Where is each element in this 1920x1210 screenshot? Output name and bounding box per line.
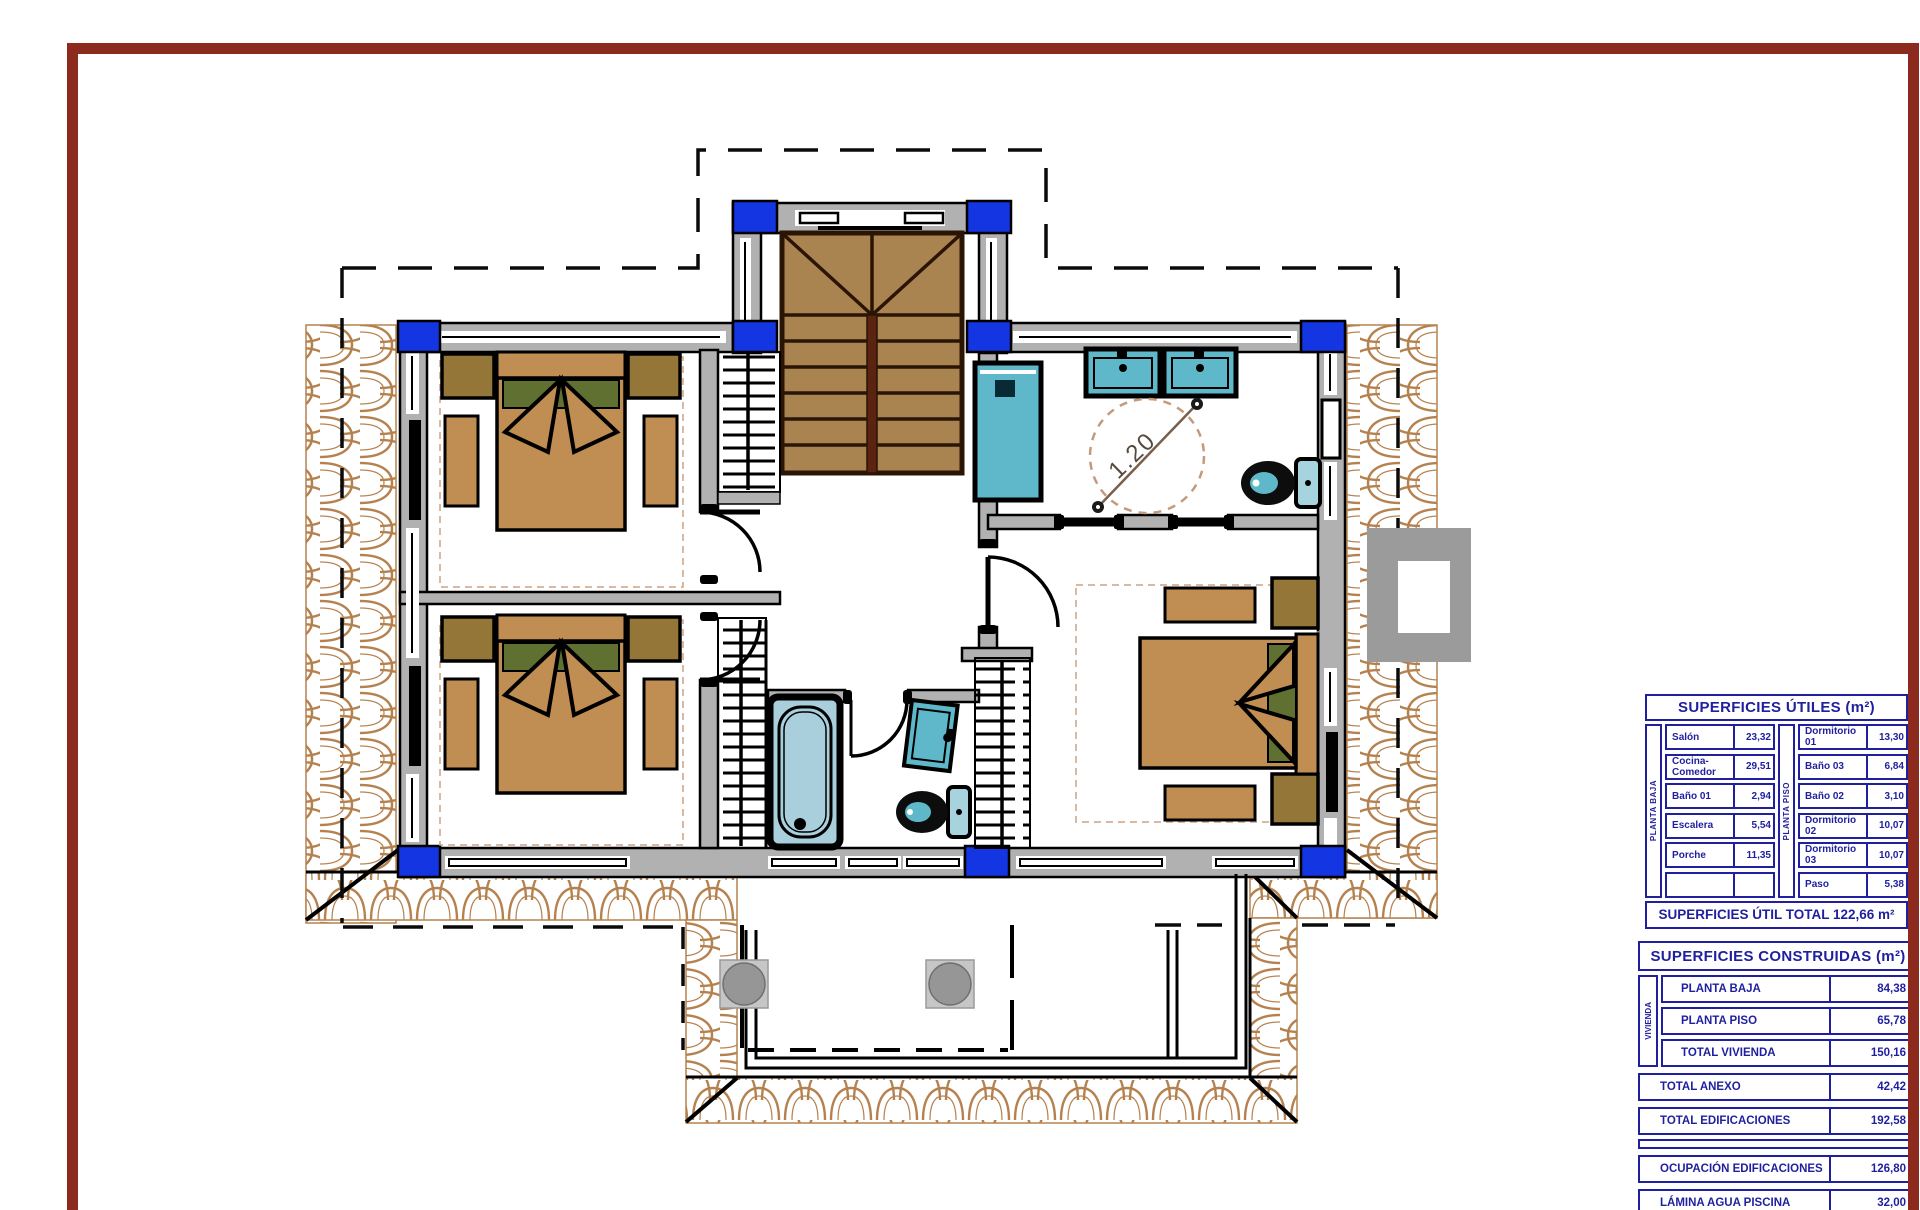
- dimension-label: 1.20: [1103, 427, 1161, 484]
- wall-sink: [904, 700, 959, 771]
- table-row: PLANTA BAJA84,38: [1661, 975, 1918, 1003]
- group-label-planta-baja: PLANTA BAJA: [1645, 724, 1662, 898]
- bathroom-top: 1.20: [1086, 349, 1320, 513]
- table-row-empty: [1665, 872, 1775, 898]
- table-row-empty: [1638, 1139, 1918, 1149]
- double-sinks: [1086, 349, 1236, 396]
- table-superficies-utiles: SUPERFICIES ÚTILES (m²) PLANTA BAJA Saló…: [1645, 694, 1908, 929]
- table-title: SUPERFICIES CONSTRUIDAS (m²): [1638, 941, 1918, 971]
- door-bedroom3: [988, 557, 1058, 627]
- toilet-top: [1241, 459, 1320, 507]
- porch: [720, 874, 1246, 1068]
- toilet-center: [896, 787, 970, 837]
- table-row: Porche11,35: [1665, 842, 1775, 868]
- table-row: Dormitorio 0113,30: [1798, 724, 1908, 750]
- table-row: Cocina-Comedor29,51: [1665, 754, 1775, 780]
- table-row: Escalera5,54: [1665, 813, 1775, 839]
- table-row: Dormitorio 0310,07: [1798, 842, 1908, 868]
- chimney: [1367, 528, 1471, 662]
- bedroom-2: [440, 615, 683, 845]
- table-superficies-construidas: SUPERFICIES CONSTRUIDAS (m²) VIVIENDA PL…: [1638, 941, 1918, 1210]
- porch-columns: [720, 960, 974, 1008]
- closet-bedroom3: [975, 658, 1030, 848]
- closet-bedroom1: [718, 352, 780, 504]
- bedroom-3: [1076, 578, 1318, 824]
- bedroom-1: [440, 352, 683, 587]
- table-row: OCUPACIÓN EDIFICACIONES126,80: [1638, 1155, 1918, 1183]
- closet-bedroom2: [718, 618, 766, 848]
- table-title: SUPERFICIES ÚTILES (m²): [1645, 694, 1908, 721]
- group-label-vivienda: VIVIENDA: [1638, 975, 1658, 1067]
- table-row: TOTAL VIVIENDA150,16: [1661, 1039, 1918, 1067]
- table-row: Salón23,32: [1665, 724, 1775, 750]
- group-label-planta-piso: PLANTA PISO: [1778, 724, 1795, 898]
- door-arc-bath: [851, 700, 907, 756]
- door-bedroom1: [700, 512, 760, 572]
- table-row: Baño 023,10: [1798, 783, 1908, 809]
- table-row: PLANTA PISO65,78: [1661, 1007, 1918, 1035]
- table-row: TOTAL ANEXO42,42: [1638, 1073, 1918, 1101]
- table-row: Baño 036,84: [1798, 754, 1908, 780]
- table-footer-total: SUPERFICIES ÚTIL TOTAL 122,66 m²: [1645, 901, 1908, 929]
- table-row: Paso5,38: [1798, 872, 1908, 898]
- table-row: LÁMINA AGUA PISCINA32,00: [1638, 1189, 1918, 1210]
- floor-plan-drawing: 1.20: [0, 0, 1920, 1210]
- table-row: TOTAL EDIFICACIONES192,58: [1638, 1107, 1918, 1135]
- table-row: Dormitorio 0210,07: [1798, 813, 1908, 839]
- table-row: Baño 012,94: [1665, 783, 1775, 809]
- bathroom-center: [766, 620, 970, 848]
- bathtub: [770, 697, 840, 847]
- dimension-circle: 1.20: [1090, 398, 1204, 513]
- staircase: [782, 233, 962, 473]
- drawing-sheet: 1.20: [0, 0, 1920, 1210]
- shower: [975, 363, 1041, 500]
